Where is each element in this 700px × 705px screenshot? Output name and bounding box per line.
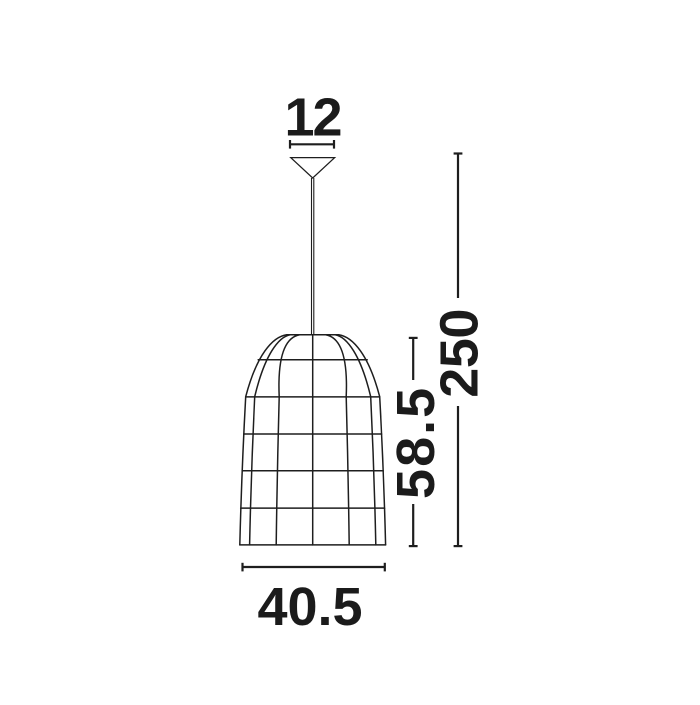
- svg-text:58.5: 58.5: [386, 386, 446, 499]
- svg-text:40.5: 40.5: [257, 577, 362, 637]
- svg-text:250: 250: [429, 309, 489, 398]
- svg-text:12: 12: [284, 88, 340, 148]
